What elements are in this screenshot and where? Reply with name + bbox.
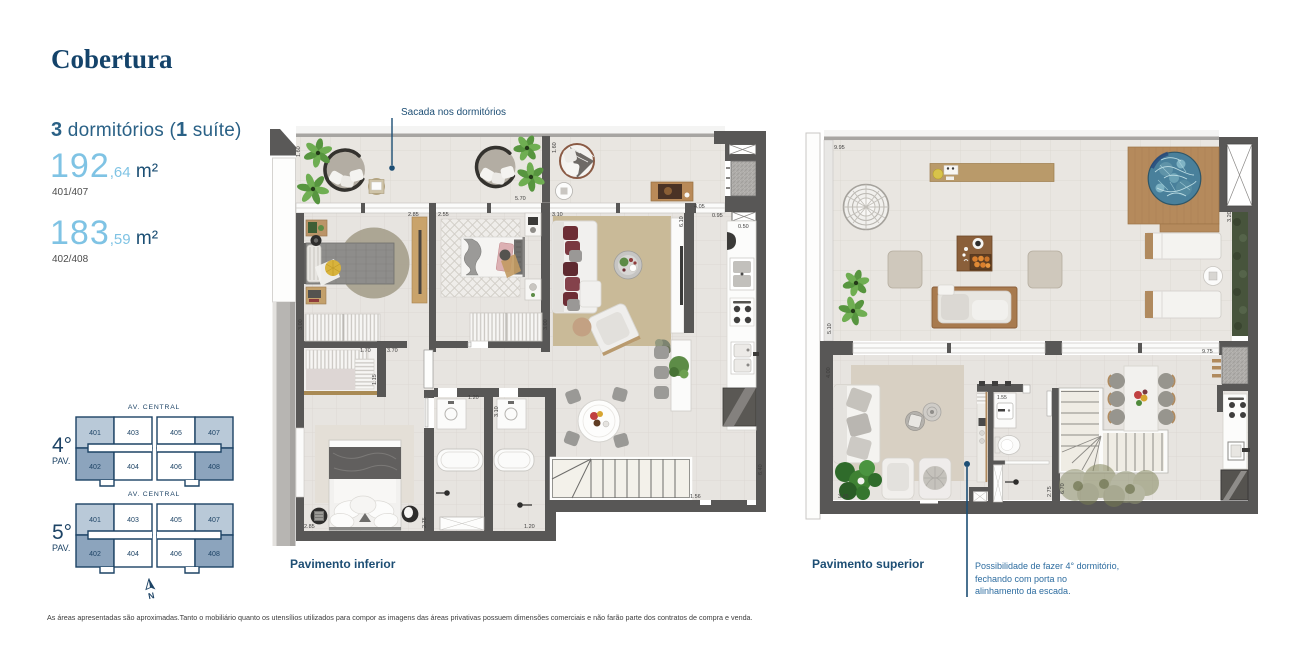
svg-text:3.00: 3.00 bbox=[543, 319, 549, 330]
svg-text:4.05: 4.05 bbox=[694, 204, 705, 210]
svg-text:3.10: 3.10 bbox=[552, 212, 563, 218]
svg-text:3.00: 3.00 bbox=[298, 319, 304, 330]
svg-text:0.50: 0.50 bbox=[738, 224, 749, 230]
svg-text:401: 401 bbox=[89, 517, 101, 524]
svg-text:408: 408 bbox=[208, 464, 220, 471]
svg-text:1.70: 1.70 bbox=[360, 348, 371, 354]
svg-text:PAV.: PAV. bbox=[52, 543, 70, 553]
svg-text:403: 403 bbox=[127, 517, 139, 524]
svg-text:3.20: 3.20 bbox=[1227, 211, 1233, 222]
svg-text:407: 407 bbox=[208, 430, 220, 437]
svg-text:404: 404 bbox=[127, 464, 139, 471]
svg-text:401: 401 bbox=[89, 430, 101, 437]
svg-text:403: 403 bbox=[127, 430, 139, 437]
svg-text:0.95: 0.95 bbox=[712, 213, 723, 219]
svg-text:2.55: 2.55 bbox=[438, 212, 449, 218]
svg-text:2.75: 2.75 bbox=[1047, 486, 1053, 497]
svg-text:6.10: 6.10 bbox=[679, 216, 685, 227]
svg-text:4°: 4° bbox=[52, 434, 72, 457]
svg-text:AV. CENTRAL: AV. CENTRAL bbox=[128, 404, 180, 411]
svg-text:5°: 5° bbox=[52, 521, 72, 544]
svg-text:5.10: 5.10 bbox=[827, 323, 833, 334]
svg-text:3.45: 3.45 bbox=[838, 494, 849, 500]
svg-text:6.40: 6.40 bbox=[758, 464, 764, 475]
svg-text:3.70: 3.70 bbox=[387, 348, 398, 354]
svg-text:1.20: 1.20 bbox=[524, 524, 535, 530]
svg-text:AV. CENTRAL: AV. CENTRAL bbox=[128, 491, 180, 498]
svg-text:404: 404 bbox=[127, 551, 139, 558]
svg-text:408: 408 bbox=[208, 551, 220, 558]
svg-text:1.60: 1.60 bbox=[552, 142, 558, 153]
svg-text:2.85: 2.85 bbox=[304, 524, 315, 530]
svg-text:402: 402 bbox=[89, 464, 101, 471]
svg-text:N: N bbox=[147, 590, 155, 601]
svg-text:407: 407 bbox=[208, 517, 220, 524]
svg-text:1.60: 1.60 bbox=[296, 146, 302, 157]
svg-text:1.20: 1.20 bbox=[468, 395, 479, 401]
svg-text:PAV.: PAV. bbox=[52, 456, 70, 466]
svg-text:405: 405 bbox=[170, 517, 182, 524]
svg-text:405: 405 bbox=[170, 430, 182, 437]
svg-text:4.00: 4.00 bbox=[826, 367, 832, 378]
svg-text:6.70: 6.70 bbox=[1060, 483, 1066, 494]
svg-text:9.75: 9.75 bbox=[1202, 349, 1213, 355]
svg-text:406: 406 bbox=[170, 551, 182, 558]
svg-text:1.55: 1.55 bbox=[997, 395, 1007, 401]
svg-text:2.75: 2.75 bbox=[422, 517, 428, 528]
svg-text:2.85: 2.85 bbox=[408, 212, 419, 218]
svg-text:1.56: 1.56 bbox=[690, 494, 701, 500]
svg-text:402: 402 bbox=[89, 551, 101, 558]
svg-text:406: 406 bbox=[170, 464, 182, 471]
svg-text:5.70: 5.70 bbox=[515, 196, 526, 202]
svg-text:1.15: 1.15 bbox=[372, 374, 378, 385]
svg-text:9.95: 9.95 bbox=[834, 145, 845, 151]
svg-text:3.10: 3.10 bbox=[494, 406, 500, 417]
